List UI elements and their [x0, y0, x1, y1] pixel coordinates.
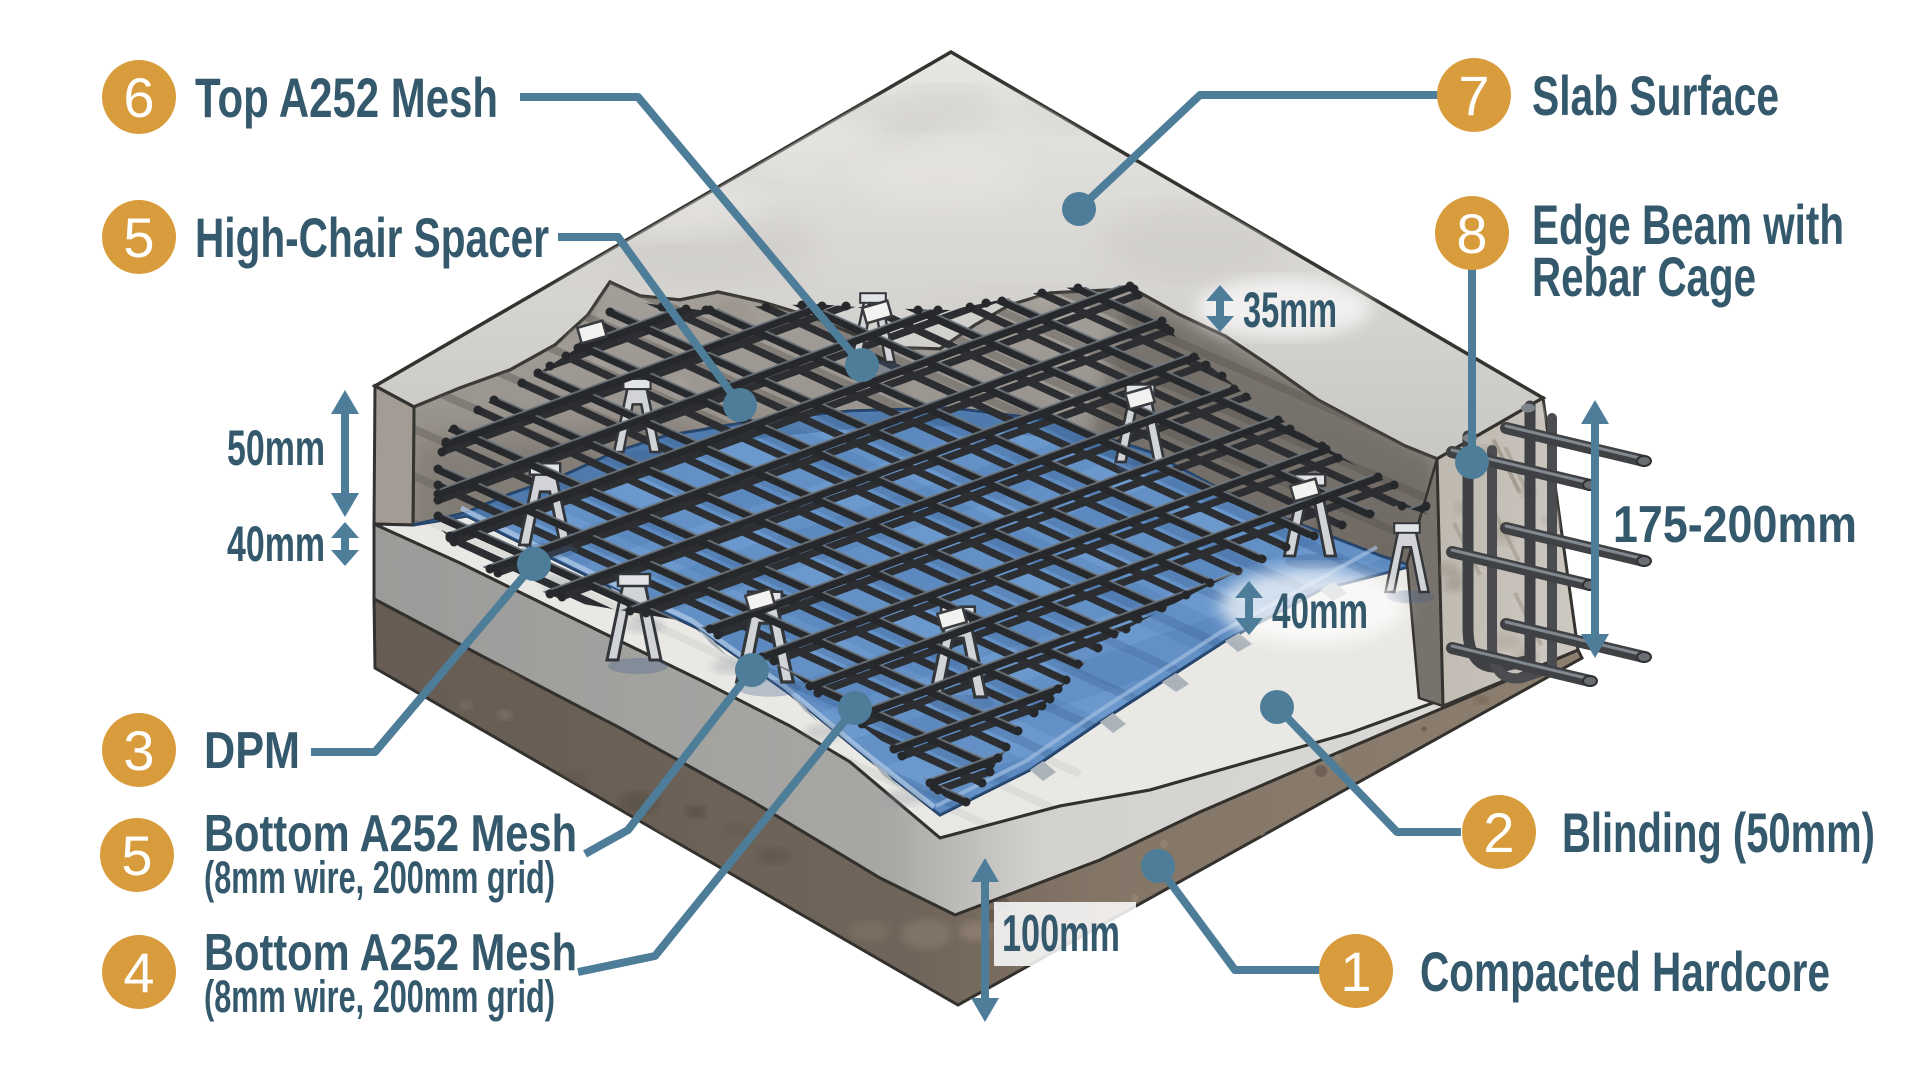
svg-text:40mm: 40mm — [227, 516, 325, 572]
svg-text:(8mm wire, 200mm grid): (8mm wire, 200mm grid) — [204, 971, 555, 1022]
svg-text:Slab Surface: Slab Surface — [1532, 64, 1779, 127]
svg-text:4: 4 — [123, 941, 154, 1004]
svg-text:1: 1 — [1340, 940, 1371, 1003]
svg-text:40mm: 40mm — [1272, 583, 1368, 639]
svg-text:Compacted Hardcore: Compacted Hardcore — [1420, 940, 1830, 1003]
svg-text:High-Chair Spacer: High-Chair Spacer — [195, 206, 549, 269]
svg-text:Top A252 Mesh: Top A252 Mesh — [195, 66, 498, 129]
svg-text:175-200mm: 175-200mm — [1613, 496, 1857, 554]
svg-text:5: 5 — [123, 206, 154, 269]
svg-text:Blinding (50mm): Blinding (50mm) — [1562, 801, 1875, 864]
svg-text:(8mm wire, 200mm grid): (8mm wire, 200mm grid) — [204, 852, 555, 903]
svg-text:2: 2 — [1483, 801, 1514, 864]
svg-text:7: 7 — [1458, 64, 1489, 127]
svg-text:Rebar Cage: Rebar Cage — [1532, 245, 1756, 308]
svg-text:5: 5 — [121, 824, 152, 887]
svg-text:6: 6 — [123, 66, 154, 129]
svg-text:100mm: 100mm — [1002, 905, 1120, 963]
svg-text:DPM: DPM — [204, 722, 300, 780]
svg-text:8: 8 — [1456, 202, 1487, 265]
svg-text:3: 3 — [123, 719, 154, 782]
svg-text:50mm: 50mm — [227, 420, 325, 476]
svg-text:35mm: 35mm — [1243, 282, 1337, 338]
